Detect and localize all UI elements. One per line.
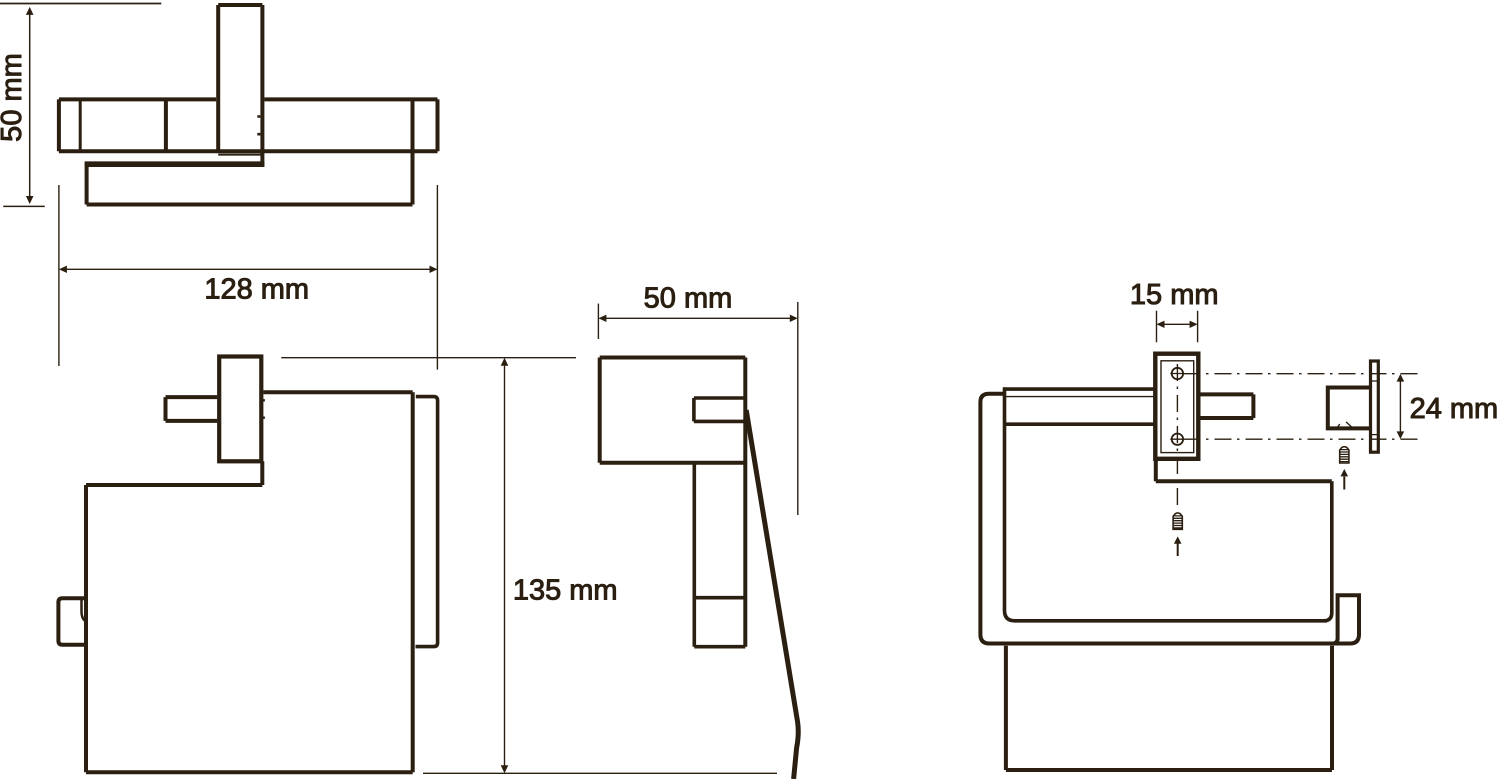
svg-text:15 mm: 15 mm [1130,279,1219,311]
svg-text:135 mm: 135 mm [513,574,618,606]
svg-text:50 mm: 50 mm [644,282,733,314]
svg-text:24 mm: 24 mm [1410,393,1499,425]
svg-text:50 mm: 50 mm [0,53,28,142]
svg-text:128 mm: 128 mm [204,273,309,305]
